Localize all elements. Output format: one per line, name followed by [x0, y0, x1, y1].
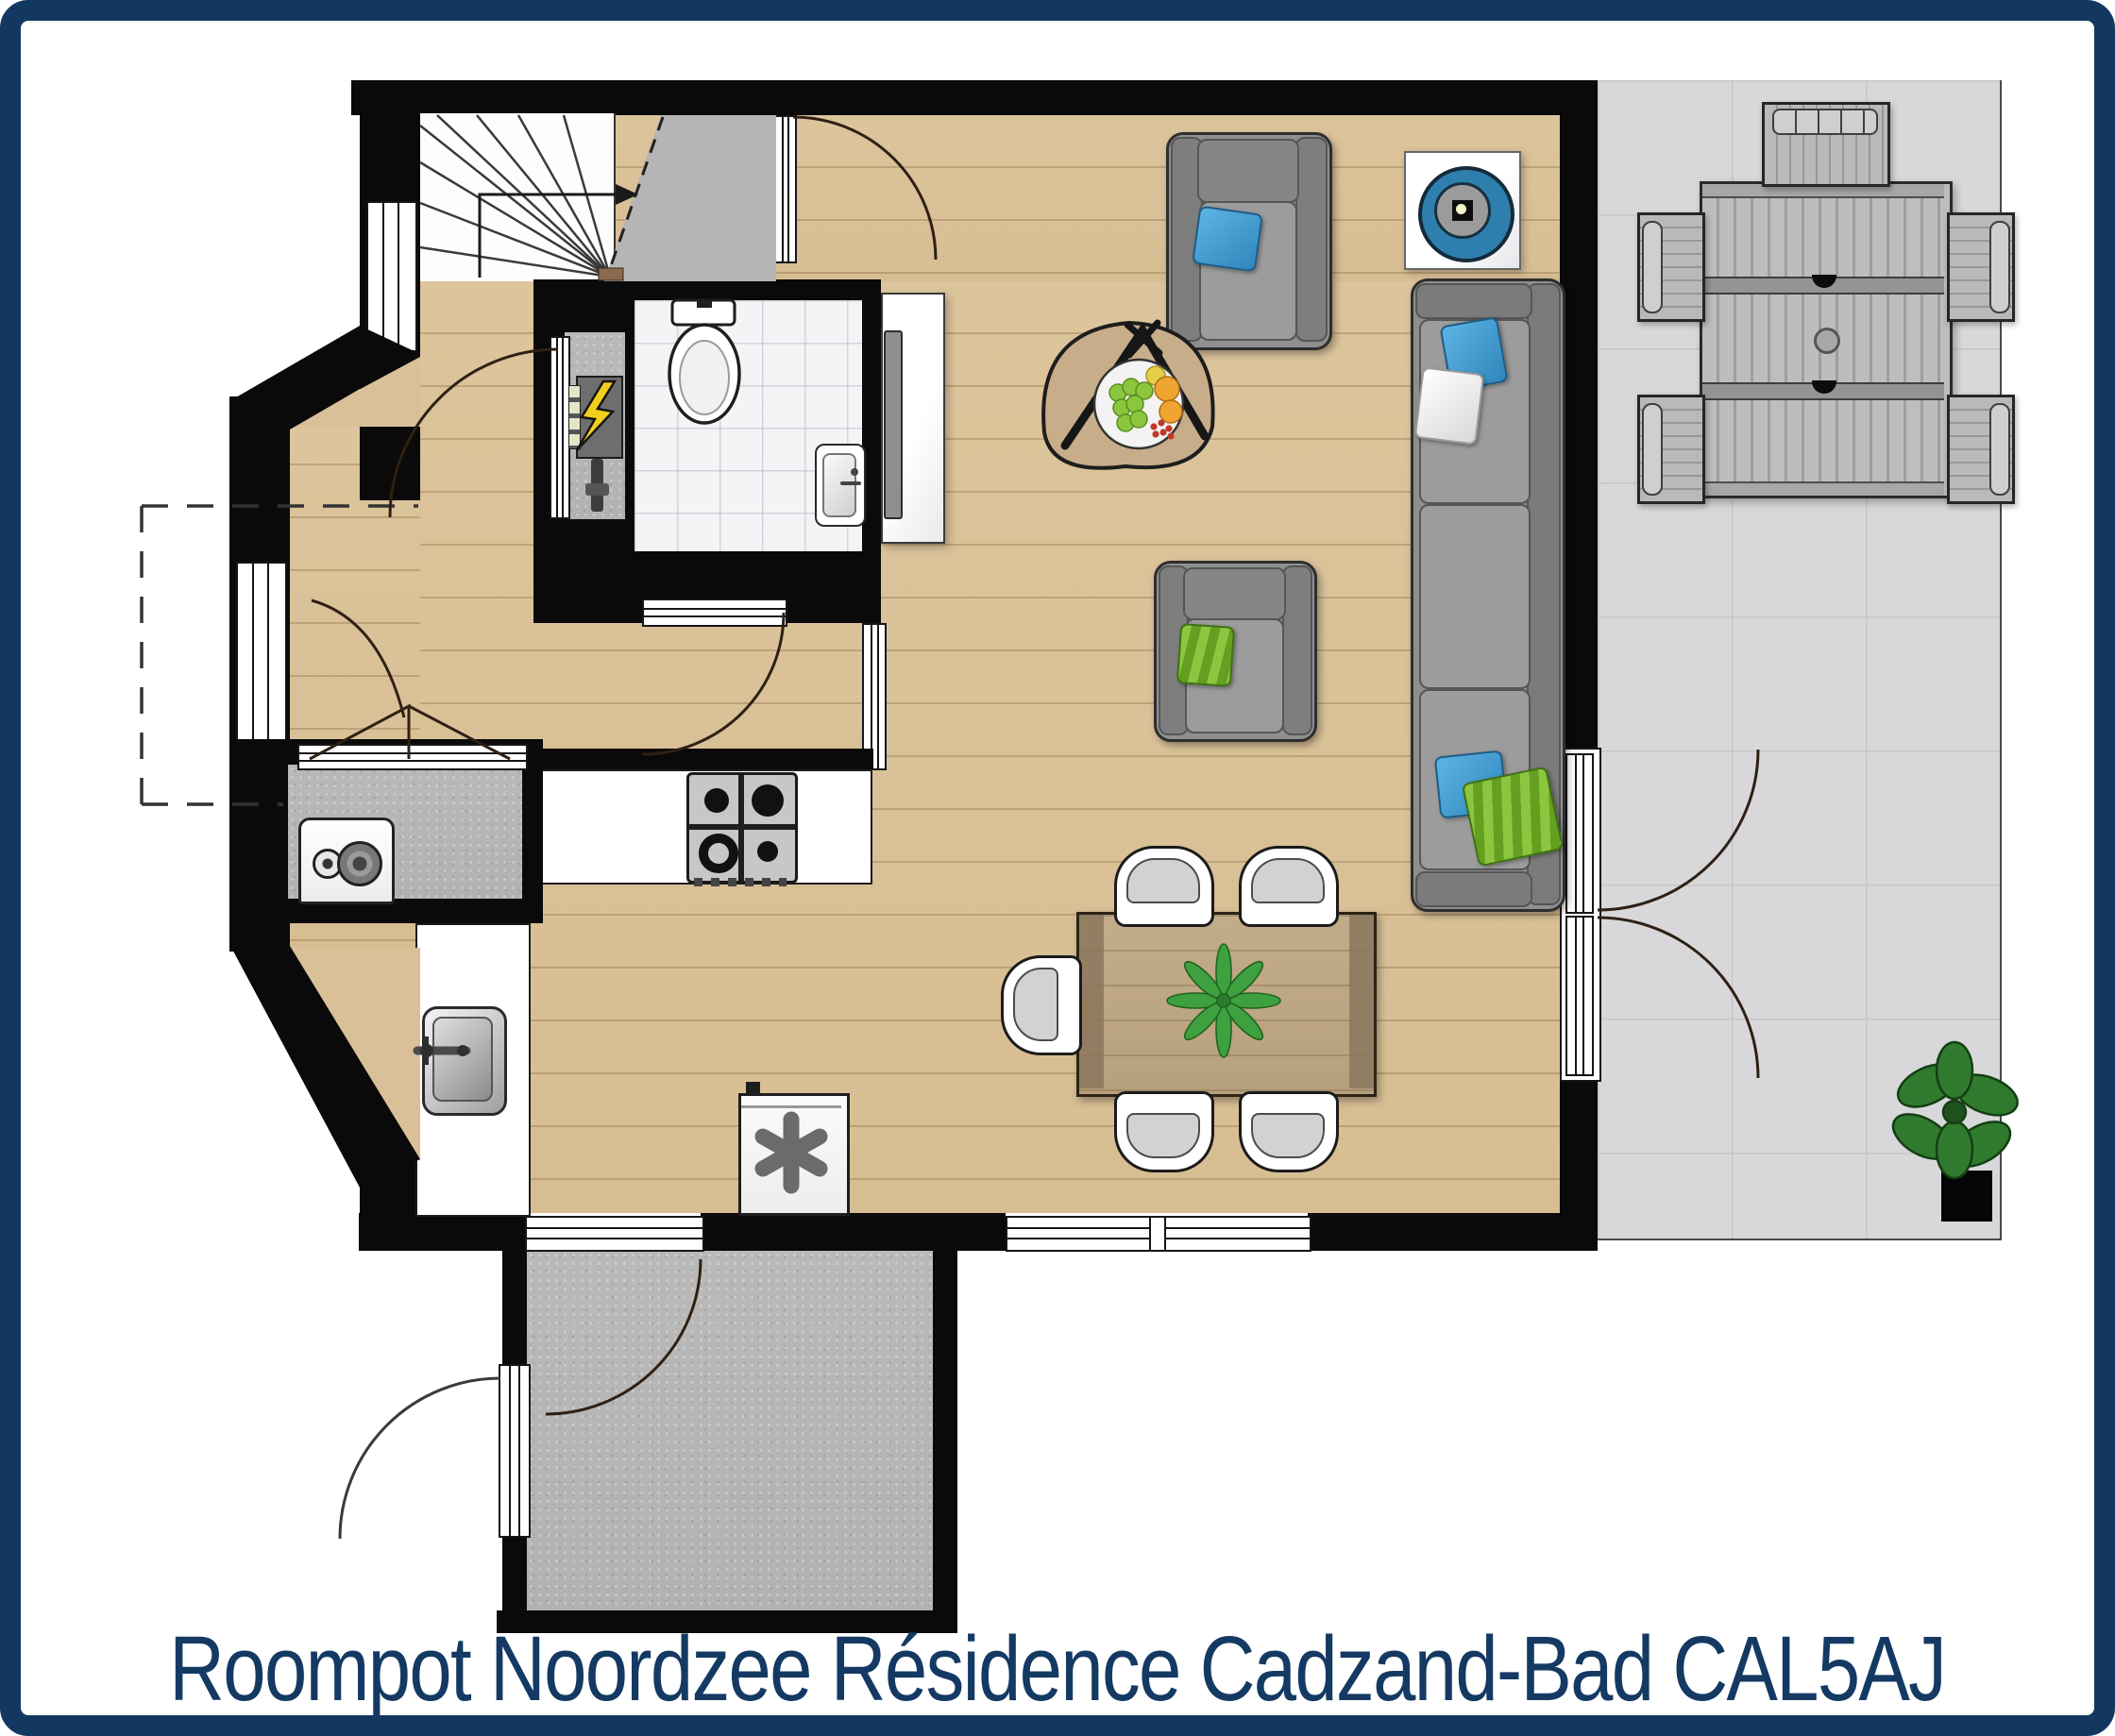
- tv-screen: [884, 330, 903, 519]
- front-door-top: [774, 115, 797, 263]
- plan-title: Roompot Noordzee Résidence Cadzand-Bad C…: [0, 1616, 2115, 1722]
- burner-icon: [752, 784, 784, 817]
- wall-right-upper: [1560, 80, 1598, 748]
- terrace-chair: [1762, 102, 1890, 187]
- utility-closet-doors-sill: [297, 744, 528, 770]
- ventilation-unit: [738, 1093, 850, 1216]
- armchair-back: [1183, 567, 1286, 620]
- pillow-white-icon: [1414, 366, 1485, 445]
- porch-wall-left-lower: [502, 1534, 527, 1614]
- sofa-seat: [1419, 504, 1531, 689]
- armchair-arm: [1295, 137, 1328, 342]
- armchair-back: [1197, 139, 1299, 203]
- bathroom-sink: [815, 444, 866, 527]
- burner-icon: [699, 834, 738, 873]
- dining-table: [1076, 912, 1377, 1097]
- terrace-post: [1941, 1171, 1992, 1222]
- window-kitchen-left: [366, 1034, 413, 1141]
- exterior-door-swing: [340, 1378, 500, 1539]
- floorplan-page: Roompot Noordzee Résidence Cadzand-Bad C…: [0, 0, 2115, 1736]
- meter-joint: [585, 483, 609, 496]
- breaker-strip: [568, 385, 581, 449]
- porch-exterior-door: [499, 1364, 531, 1538]
- porch-entry-door-sill: [525, 1216, 704, 1252]
- porch-floor: [527, 1251, 933, 1614]
- terrace-chair: [1637, 395, 1705, 504]
- window-bottom: [1006, 1216, 1311, 1252]
- sofa-arm: [1415, 283, 1532, 319]
- table-end-cap: [1079, 915, 1104, 1088]
- wall-bottom-right-seg: [1308, 1213, 1598, 1251]
- technical-closet-door: [550, 336, 570, 519]
- round-speaker-decor: [1404, 151, 1521, 270]
- french-door-leaf-top: [1565, 753, 1594, 914]
- sofa-arm: [1415, 871, 1532, 907]
- wall-top: [351, 80, 1598, 115]
- french-door-leaf-bottom: [1565, 916, 1594, 1076]
- table-rail: [1702, 481, 1944, 496]
- terrace-chair: [1947, 395, 2015, 504]
- gas-hob: [686, 772, 798, 884]
- porch-wall-right: [933, 1251, 957, 1627]
- pillow-green-icon: [1176, 623, 1235, 687]
- dining-chair: [1114, 846, 1214, 927]
- kitchen-sink-bowl: [432, 1017, 493, 1102]
- dining-chair: [1239, 846, 1339, 927]
- dining-chair: [1114, 1091, 1214, 1172]
- washing-machine: [298, 817, 395, 904]
- porch-wall-left-upper: [502, 1251, 527, 1364]
- window-mullion: [1149, 1216, 1166, 1252]
- umbrella-hole: [1814, 328, 1840, 354]
- armchair-arm: [1282, 565, 1312, 735]
- speaker-dot-icon: [1456, 204, 1466, 214]
- window-stairs-left: [366, 201, 417, 352]
- pillow-blue-icon: [1192, 206, 1263, 273]
- window-hall-left: [236, 562, 287, 743]
- table-end-cap: [1349, 915, 1374, 1088]
- vent-top-line: [741, 1105, 841, 1108]
- dining-chair: [1239, 1091, 1339, 1172]
- terrace-chair: [1947, 212, 2015, 322]
- bathroom-sink-bowl: [822, 453, 856, 517]
- staircase: [420, 113, 616, 281]
- washer-drum: [337, 841, 382, 886]
- dining-chair: [1001, 955, 1082, 1055]
- terrace-chair: [1637, 212, 1705, 322]
- electrical-panel: [576, 376, 623, 459]
- burner-icon: [757, 841, 778, 862]
- wall-bottom-mid-seg: [701, 1213, 1006, 1251]
- burner-icon: [704, 788, 729, 813]
- hob-knobs: [694, 878, 787, 886]
- vent-nub: [746, 1082, 760, 1093]
- pillow-green-icon: [1462, 766, 1565, 867]
- kitchen-sink: [422, 1006, 507, 1116]
- kitchen-wall: [529, 749, 873, 769]
- plan-title-text: Roompot Noordzee Résidence Cadzand-Bad C…: [169, 1616, 1945, 1722]
- bathroom-door-sill: [642, 598, 787, 627]
- terrace-table: [1700, 181, 1953, 498]
